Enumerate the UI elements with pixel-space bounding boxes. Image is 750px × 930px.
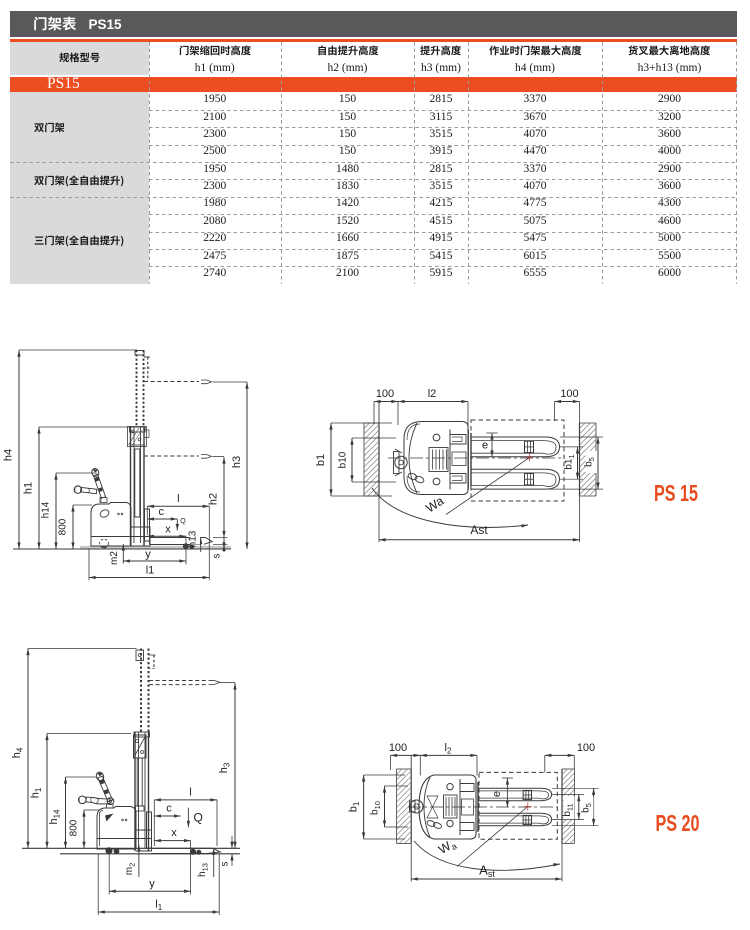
svg-text:Q: Q xyxy=(180,518,186,525)
svg-text:l2: l2 xyxy=(445,742,452,756)
svg-text:h3: h3 xyxy=(231,456,243,468)
svg-text:l: l xyxy=(177,493,179,505)
svg-text:100: 100 xyxy=(577,742,595,754)
svg-text:800: 800 xyxy=(69,819,80,836)
svg-text:e: e xyxy=(491,791,503,797)
svg-text:PS 20: PS 20 xyxy=(656,810,700,836)
svg-text:e: e xyxy=(482,440,488,452)
svg-text:h4: h4 xyxy=(11,747,25,758)
svg-text:100: 100 xyxy=(389,742,407,754)
svg-text:Ast: Ast xyxy=(470,523,488,537)
svg-text:h14: h14 xyxy=(41,501,52,518)
svg-text:m2: m2 xyxy=(109,551,120,565)
svg-text:s: s xyxy=(220,862,231,867)
svg-text:h13: h13 xyxy=(188,530,199,547)
svg-text:x: x xyxy=(171,827,177,839)
svg-text:h13: h13 xyxy=(197,863,210,877)
svg-text:h2: h2 xyxy=(208,493,220,505)
svg-text:100: 100 xyxy=(376,388,394,400)
svg-text:l: l xyxy=(189,787,191,799)
svg-text:PS 15: PS 15 xyxy=(654,480,698,506)
svg-text:m2: m2 xyxy=(124,863,137,876)
svg-text:800: 800 xyxy=(58,518,69,535)
svg-text:c: c xyxy=(166,803,172,815)
svg-text:x: x xyxy=(165,524,171,536)
svg-text:l1: l1 xyxy=(155,899,162,913)
svg-text:s: s xyxy=(212,554,223,559)
svg-text:100: 100 xyxy=(560,388,578,400)
svg-text:y: y xyxy=(149,878,155,890)
svg-text:Wa: Wa xyxy=(423,494,446,516)
svg-text:b1: b1 xyxy=(315,454,327,466)
svg-text:b10: b10 xyxy=(370,801,383,815)
svg-text:b5: b5 xyxy=(581,803,594,813)
svg-text:l2: l2 xyxy=(428,388,437,400)
svg-text:c: c xyxy=(159,506,165,518)
svg-text:b10: b10 xyxy=(338,451,349,468)
svg-text:b5: b5 xyxy=(584,457,597,467)
svg-text:Ast: Ast xyxy=(479,863,495,880)
svg-text:h14: h14 xyxy=(48,809,62,825)
svg-text:y: y xyxy=(145,549,151,561)
svg-text:h1: h1 xyxy=(23,482,35,494)
svg-text:Q: Q xyxy=(194,811,203,825)
svg-text:l1: l1 xyxy=(146,565,155,577)
svg-text:b1: b1 xyxy=(348,801,362,812)
svg-text:h3: h3 xyxy=(218,762,232,773)
svg-text:h4: h4 xyxy=(3,449,15,461)
svg-text:h1: h1 xyxy=(30,787,44,798)
